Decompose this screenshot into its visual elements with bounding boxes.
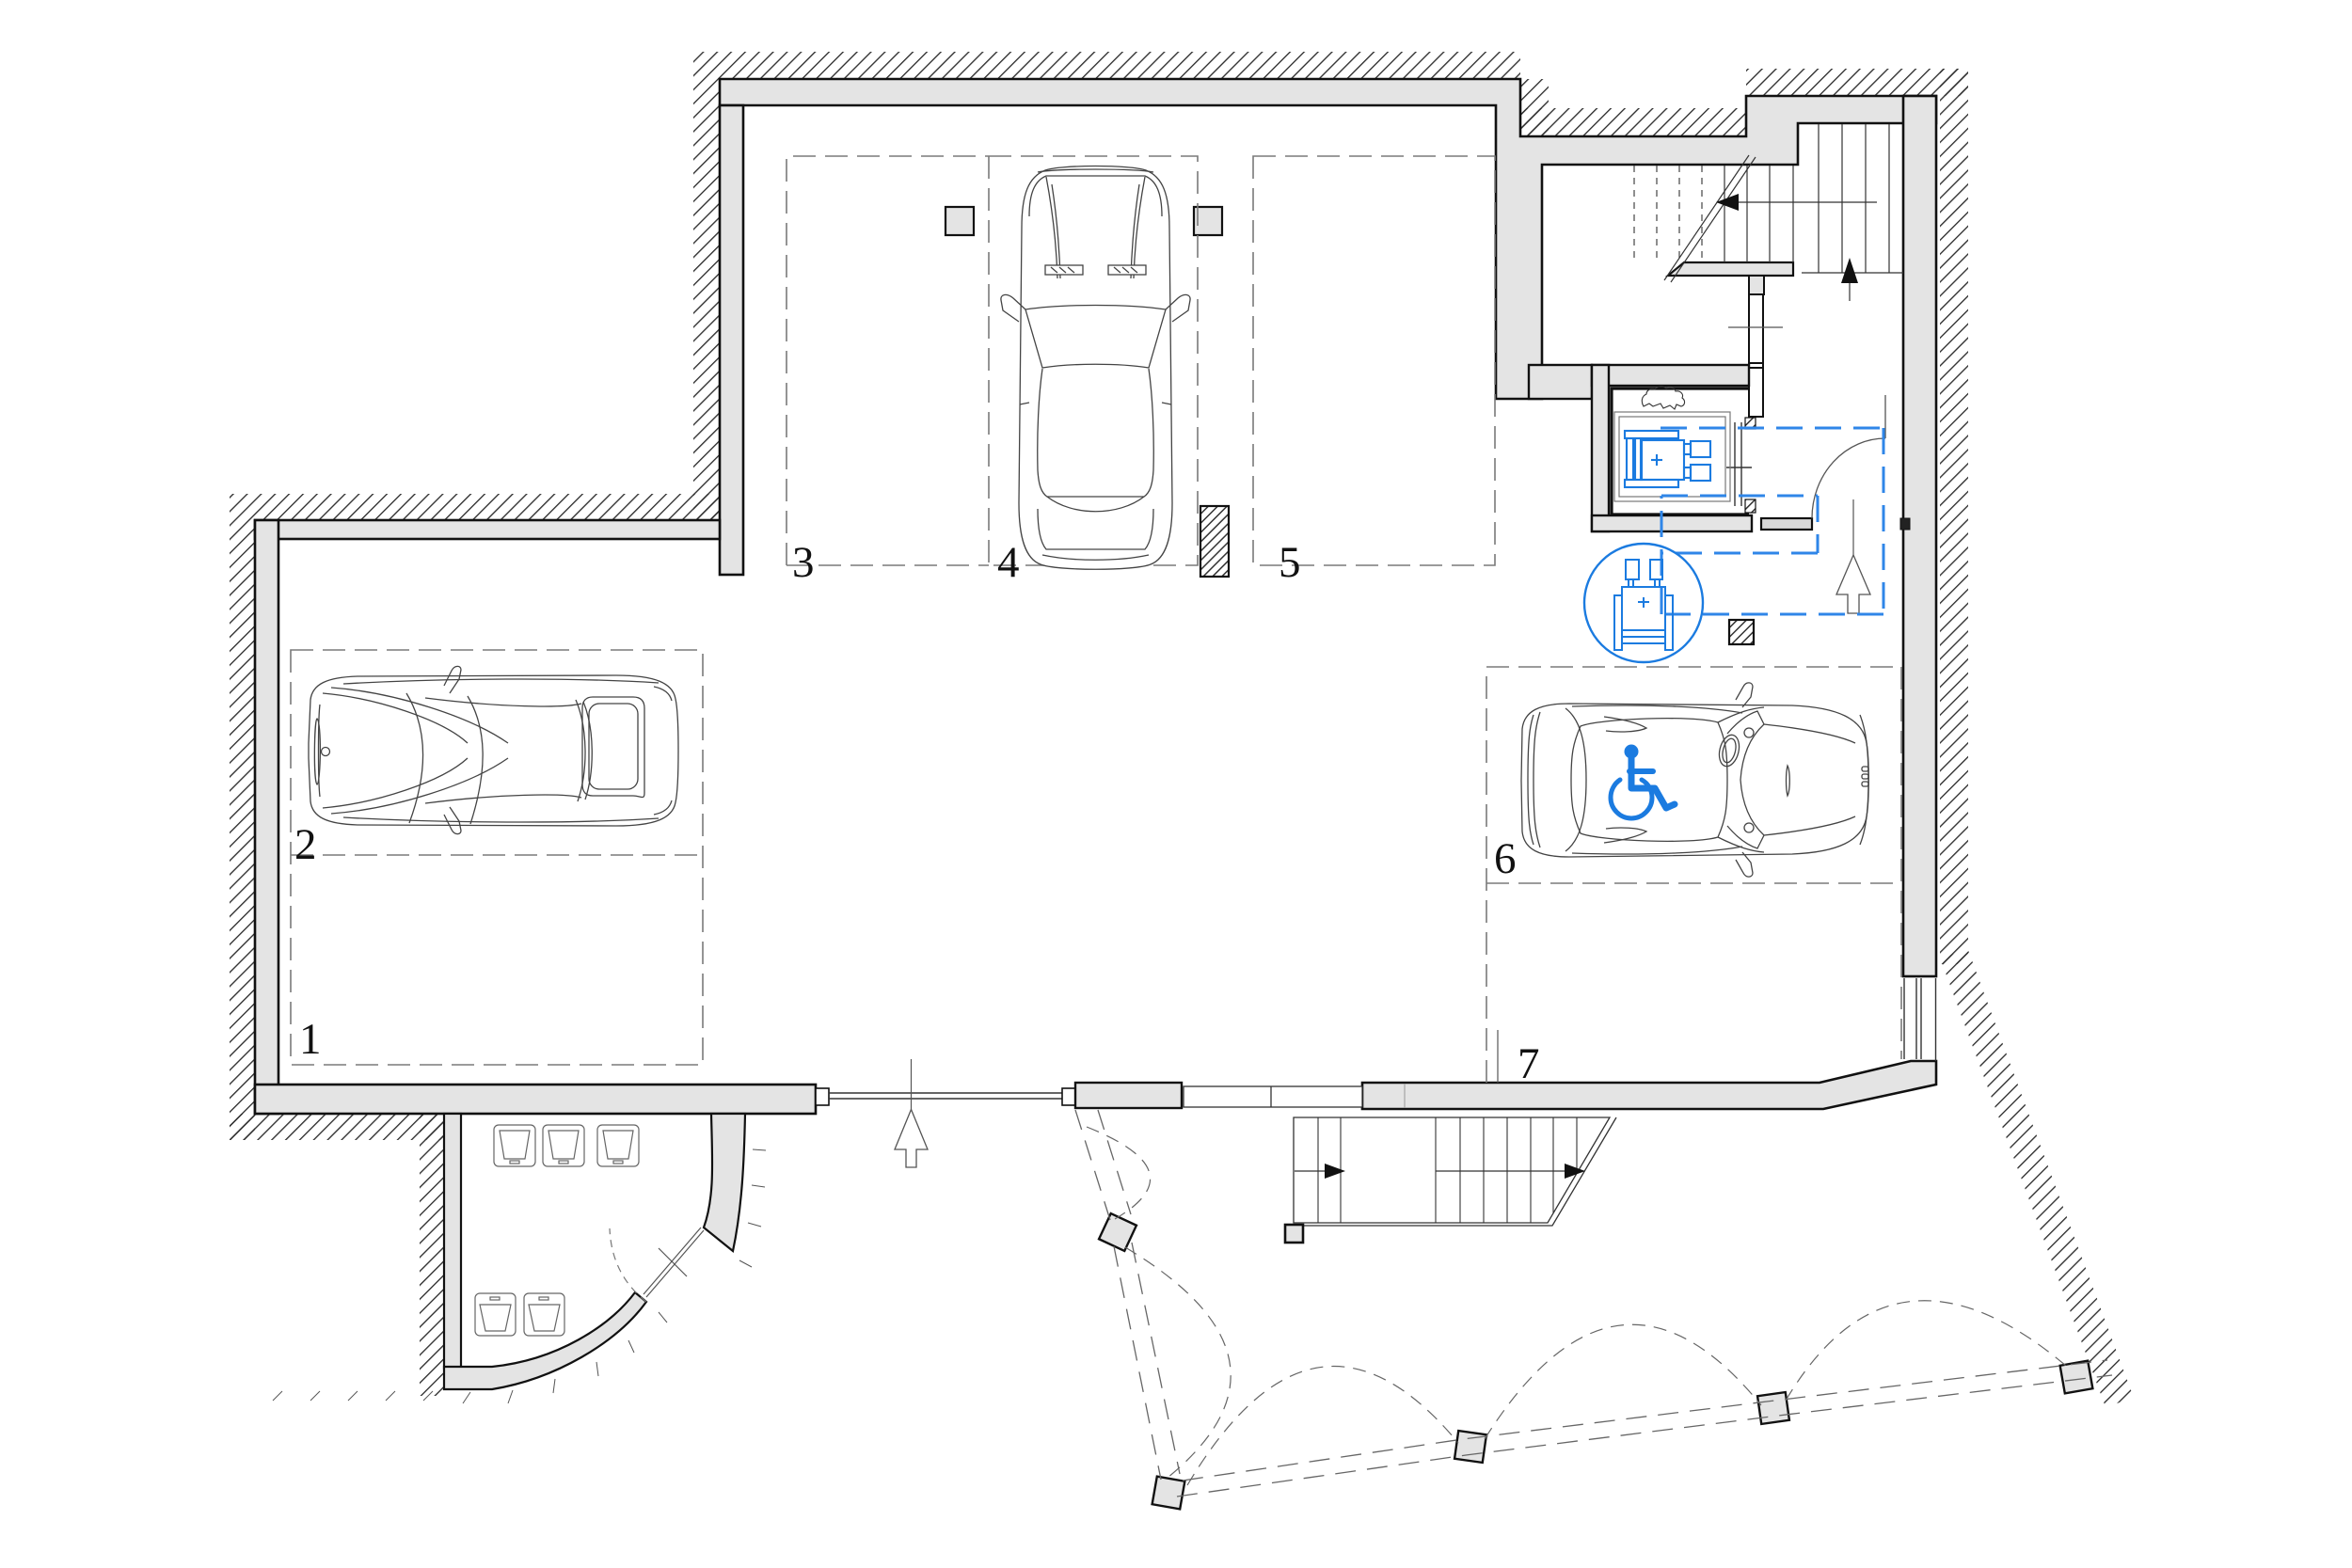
svg-text:1: 1 bbox=[299, 1015, 322, 1064]
svg-text:3: 3 bbox=[792, 538, 815, 587]
svg-text:7: 7 bbox=[1518, 1039, 1540, 1088]
svg-text:4: 4 bbox=[997, 538, 1020, 587]
svg-text:5: 5 bbox=[1279, 538, 1301, 587]
svg-text:2: 2 bbox=[294, 820, 317, 869]
svg-text:6: 6 bbox=[1494, 834, 1517, 883]
